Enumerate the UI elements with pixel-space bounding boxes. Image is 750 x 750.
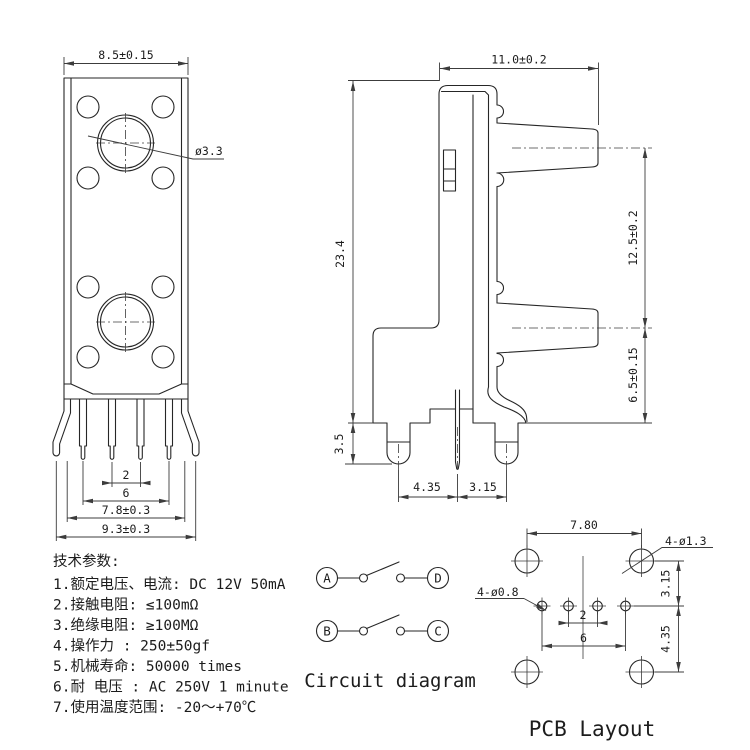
terminal-a-label: A: [323, 571, 331, 586]
dim-side-gap-right: 3.15: [469, 480, 497, 494]
dim-pcb-span: 6: [580, 631, 587, 645]
terminal-c-label: C: [434, 624, 442, 639]
tech-param-line: 4.操作力 : 250±50gf: [53, 638, 210, 655]
side-clip-detail: [444, 150, 456, 191]
dim-front-legs: 7.8±0.3: [102, 503, 151, 517]
front-body-outline: [64, 78, 188, 399]
dim-side-depth: 11.0±0.2: [491, 53, 546, 67]
tech-param-line: 1.额定电压、电流: DC 12V 50mA: [53, 576, 286, 593]
front-dimensions: 8.5±0.15 ø3.3 2 6 7.8±0.3 9.3±0.3: [56, 48, 224, 541]
terminal-b-label: B: [323, 624, 331, 639]
switch-contacts: [338, 562, 428, 635]
dim-front-span: 6: [123, 486, 130, 500]
dim-side-shaft-pitch: 12.5±0.2: [626, 210, 640, 265]
dim-front-overall: 9.3±0.3: [102, 522, 151, 536]
dim-pcb-width: 7.80: [570, 518, 598, 532]
side-dimensions: 11.0±0.2 23.4 3.5 12.5±0.2 6.5±0.15 4.35…: [332, 53, 652, 503]
side-shaft-upper: [497, 123, 652, 173]
front-pins: [80, 399, 173, 459]
side-body-outline: [373, 86, 504, 424]
dim-side-shaft-base: 6.5±0.15: [626, 347, 640, 402]
pcb-labels: 4-ø1.3 4-ø0.8: [475, 534, 713, 611]
label-mount-holes: 4-ø1.3: [665, 534, 707, 548]
tech-param-line: 3.绝缘电阻: ≥100MΩ: [53, 617, 199, 634]
technical-drawing-sheet: 8.5±0.15 ø3.3 2 6 7.8±0.3 9.3±0.3: [0, 0, 750, 750]
circuit-diagram: A D B C Circuit diagram: [304, 562, 476, 692]
tech-params: 技术参数: 1.额定电压、电流: DC 12V 50mA 2.接触电阻: ≤10…: [53, 553, 289, 716]
pcb-layout: 7.80 3.15 4.35 2 6 4-ø1.3 4-ø0.8 PCB Lay…: [475, 518, 713, 741]
dim-side-height: 23.4: [333, 240, 347, 268]
dim-side-pin-length: 3.5: [332, 434, 346, 455]
tech-param-line: 6.耐 电压 : AC 250V 1 minute: [53, 679, 289, 696]
tech-param-line: 2.接触电阻: ≤100mΩ: [53, 597, 199, 614]
tech-param-line: 7.使用温度范围: -20～+70℃: [53, 699, 256, 716]
dim-pcb-row-top: 3.15: [659, 570, 673, 598]
circuit-caption: Circuit diagram: [304, 670, 476, 692]
dim-front-hole: ø3.3: [195, 144, 223, 158]
side-shaft-lower: [497, 303, 652, 353]
pcb-dimensions: 7.80 3.15 4.35 2 6: [527, 518, 684, 672]
pcb-caption: PCB Layout: [529, 717, 655, 741]
dim-front-pitch: 2: [123, 468, 130, 482]
dim-front-width: 8.5±0.15: [98, 48, 153, 62]
front-shaft-hole-lower: [96, 292, 155, 352]
terminal-d-label: D: [434, 571, 442, 586]
label-pin-holes: 4-ø0.8: [477, 585, 519, 599]
side-view: 11.0±0.2 23.4 3.5 12.5±0.2 6.5±0.15 4.35…: [332, 53, 652, 503]
dim-side-gap-left: 4.35: [413, 480, 441, 494]
front-shaft-hole-upper: [96, 113, 155, 173]
front-bracket-legs: [53, 399, 199, 456]
side-base-and-pins: [387, 387, 527, 473]
dim-pcb-row-bottom: 4.35: [659, 625, 673, 653]
front-view: 8.5±0.15 ø3.3 2 6 7.8±0.3 9.3±0.3: [53, 48, 224, 541]
dim-pcb-pitch: 2: [580, 608, 587, 622]
tech-params-title: 技术参数:: [53, 553, 120, 570]
tech-param-line: 5.机械寿命: 50000 times: [53, 657, 242, 675]
drawing-canvas: 8.5±0.15 ø3.3 2 6 7.8±0.3 9.3±0.3: [0, 0, 750, 750]
